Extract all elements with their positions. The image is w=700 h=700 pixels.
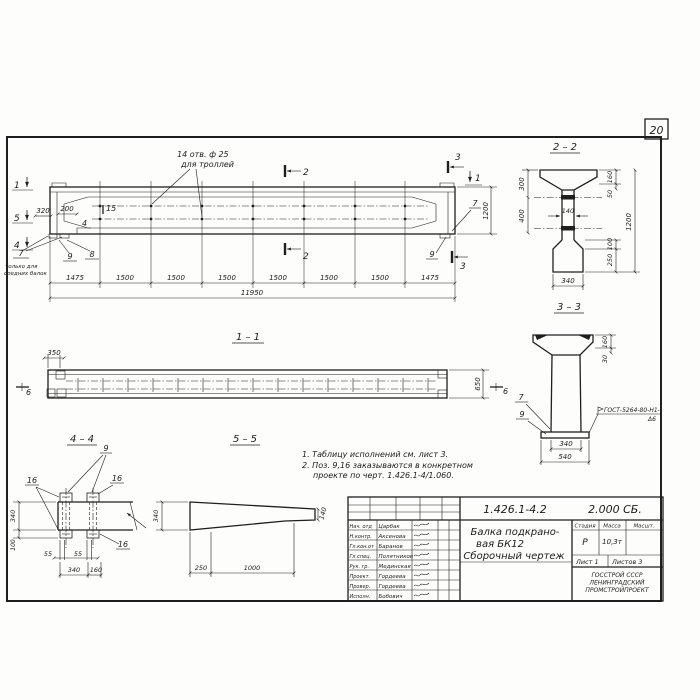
base-plate xyxy=(541,432,589,438)
dimension-chain: 1475 1500 1500 1500 1500 1500 1500 1475 … xyxy=(50,274,455,298)
dim-340: 340 xyxy=(559,440,573,448)
dim-55: 55 xyxy=(74,550,82,558)
sig-name: Гордеева xyxy=(379,584,407,590)
section-title: 1 – 1 xyxy=(236,332,260,343)
drawing-title-line3: Сборочный чертеж xyxy=(463,550,564,562)
dim-650: 650 xyxy=(474,377,482,391)
elevation-view: 1475 1500 1500 1500 1500 1500 1500 1475 … xyxy=(4,150,497,302)
cut-mark-3-bottom: 3 xyxy=(460,262,466,272)
note-line-1: 1. Таблицу исполнений см. лист 3. xyxy=(302,450,448,459)
pos-label-16: 16 xyxy=(27,476,37,485)
org-line1: ГОССТРОЙ СССР xyxy=(591,572,642,579)
cut-mark-3-top: 3 xyxy=(455,153,461,163)
pos-label-4: 4 xyxy=(82,219,87,228)
weld-flag-icon xyxy=(598,407,603,414)
col-mass: Масса xyxy=(603,524,621,530)
sig-name: Царбак xyxy=(379,524,401,530)
dim-250: 250 xyxy=(195,564,207,572)
cut-mark-2-top: 2 xyxy=(303,168,309,178)
sig-role: Гл.кон.от xyxy=(350,544,376,550)
dim-30: 30 xyxy=(601,355,609,363)
dim-label: 1475 xyxy=(66,274,84,282)
drawing-title-line1: Балка подкрано- xyxy=(470,527,559,538)
dim-label: 1500 xyxy=(116,274,134,282)
dim-140: 140 xyxy=(562,207,574,215)
pos-label-16: 16 xyxy=(112,474,122,483)
dim-320: 320 xyxy=(36,207,50,215)
cut-mark-1: 1 xyxy=(14,181,20,191)
drawing-sheet: 20 xyxy=(0,0,700,700)
dim-label: 1500 xyxy=(167,274,185,282)
dim-160: 160 xyxy=(606,171,614,183)
sig-role: Нач. отд xyxy=(350,524,373,530)
pos-label-9-right: 9 xyxy=(429,250,434,259)
col-stage: Стадия xyxy=(574,524,596,530)
dim-100: 100 xyxy=(606,238,614,250)
dim-55: 55 xyxy=(44,550,52,558)
drawing-title-line2: вая БК12 xyxy=(476,539,524,550)
pos-label-16: 16 xyxy=(118,540,128,549)
section-title: 2 – 2 xyxy=(553,142,577,153)
sig-name: Гордеева xyxy=(379,574,407,580)
section-title: 4 – 4 xyxy=(70,434,94,445)
dim-100: 100 xyxy=(10,539,17,551)
drawing-canvas: 20 xyxy=(0,0,700,700)
cut-mark-2-bottom: 2 xyxy=(303,252,309,262)
sig-role: Н.контр. xyxy=(350,534,372,540)
section-2-2: 2 – 2 300 400 160 50 1200 100 250 140 xyxy=(518,142,640,290)
doc-suffix: 2.000 СБ. xyxy=(588,503,642,516)
dim-50: 50 xyxy=(606,190,614,198)
bearing-note-line2: средних балок xyxy=(4,271,48,277)
bearing-note-line1: только для xyxy=(5,264,38,270)
cut-mark-6-left: 6 xyxy=(26,388,31,397)
web-taper-outline xyxy=(190,502,315,530)
hole-tick-marks xyxy=(78,378,428,392)
sheet-number: Лист 1 xyxy=(575,558,599,566)
dim-label: 1500 xyxy=(320,274,338,282)
doc-number: 1.426.1-4.2 xyxy=(483,503,546,516)
embed-plate xyxy=(578,335,591,340)
sig-role: Исполн. xyxy=(350,594,371,600)
dim-300: 300 xyxy=(518,177,526,191)
sig-name: Полятников xyxy=(379,554,414,560)
sig-name: Бобович xyxy=(379,594,404,600)
dim-160: 160 xyxy=(601,336,609,348)
sig-role: Гл.спец. xyxy=(350,554,372,560)
weld-note-line1: ГОСТ-5264-80-Н1- xyxy=(604,407,660,414)
leader-line xyxy=(196,169,202,217)
pos-label-7-right: 7 xyxy=(472,199,478,208)
pos-label-9: 9 xyxy=(519,410,524,419)
cut-marks-left: 1 5 4 xyxy=(12,177,33,251)
dim-1000: 1000 xyxy=(244,564,261,572)
dim-160: 160 xyxy=(90,566,102,574)
section-1-1: 1 – 1 350 650 6 xyxy=(16,332,508,398)
signature-scribbles xyxy=(414,523,429,596)
page-number: 20 xyxy=(650,124,664,137)
dim-400: 400 xyxy=(518,209,526,223)
dim-1200: 1200 xyxy=(625,213,633,231)
dim-200: 200 xyxy=(60,205,74,213)
cut-mark-6-right: 6 xyxy=(503,387,508,396)
sig-role: Провер. xyxy=(350,584,371,590)
dim-340-bottom: 340 xyxy=(68,566,80,574)
value-stage: Р xyxy=(582,538,588,548)
dim-340: 340 xyxy=(561,277,575,285)
org-line3: ПРОМСТРОЙПРОЕКТ xyxy=(585,587,650,594)
dim-label: 1500 xyxy=(218,274,236,282)
pos-label-9-left: 9 xyxy=(67,252,72,261)
signature-table: Нач. отд Царбак Н.контр. Аксенова Гл.кон… xyxy=(348,520,460,601)
pos-label-9: 9 xyxy=(103,444,108,453)
top-flange xyxy=(533,335,593,355)
dim-total: 11950 xyxy=(241,289,264,297)
note-line-2: 2. Поз. 9,16 заказываются в конкретном xyxy=(302,461,473,470)
cut-mark-1-right: 1 xyxy=(475,174,481,184)
pos-label-8: 8 xyxy=(89,250,94,259)
dim-label: 1500 xyxy=(371,274,389,282)
dim-label: 1475 xyxy=(421,274,439,282)
extension-lines xyxy=(50,181,455,302)
sheet-frame: 20 xyxy=(7,119,668,601)
embed-plate xyxy=(535,335,548,340)
value-mass: 10,3т xyxy=(602,538,623,546)
sig-name: Мединская xyxy=(379,564,412,570)
top-flange xyxy=(540,170,597,190)
note-line-3: проекте по черт. 1.426.1-4/1.060. xyxy=(313,471,454,480)
weld-note-line2: Δ6 xyxy=(647,416,656,423)
section-3-3: 3 – 3 160 30 7 9 ГОСТ-5264-80-Н1- Δ6 340… xyxy=(515,302,660,465)
dim-250: 250 xyxy=(606,254,614,266)
cut-mark-5: 5 xyxy=(14,214,20,224)
dim-140: 140 xyxy=(318,506,329,520)
holes-note-line1: 14 отв. ф 25 xyxy=(177,150,229,159)
notes-block: 1. Таблицу исполнений см. лист 3. 2. Поз… xyxy=(302,450,473,480)
holes-note-line2: для троллей xyxy=(180,160,234,169)
title-block: 1.426.1-4.2 2.000 СБ. Нач. отд Царбак Н.… xyxy=(348,497,663,601)
org-line2: ЛЕНИНГРАДСКИЙ xyxy=(589,580,646,587)
section-4-4: 4 – 4 9 16 16 16 340 xyxy=(9,434,146,578)
trolley-holes xyxy=(99,205,407,221)
col-scale: Масшт. xyxy=(633,524,654,530)
dim-340-side: 340 xyxy=(9,510,17,522)
pos-label-15: 15 xyxy=(106,204,116,213)
section-title: 3 – 3 xyxy=(557,302,581,313)
sig-role: Проект. xyxy=(350,574,371,580)
dim-350: 350 xyxy=(47,349,61,357)
sheet-count: Листов 3 xyxy=(611,558,642,566)
sig-role: Рук. гр. xyxy=(350,564,370,570)
sig-name: Аксенова xyxy=(378,534,407,540)
bottom-block xyxy=(553,240,583,272)
pos-label-7: 7 xyxy=(518,393,524,402)
section-title: 5 – 5 xyxy=(233,434,257,445)
dim-340: 340 xyxy=(152,510,160,522)
dim-540: 540 xyxy=(558,453,572,461)
sig-name: Баранов xyxy=(379,544,403,550)
dim-label: 1500 xyxy=(269,274,287,282)
dim-1200: 1200 xyxy=(482,202,490,220)
